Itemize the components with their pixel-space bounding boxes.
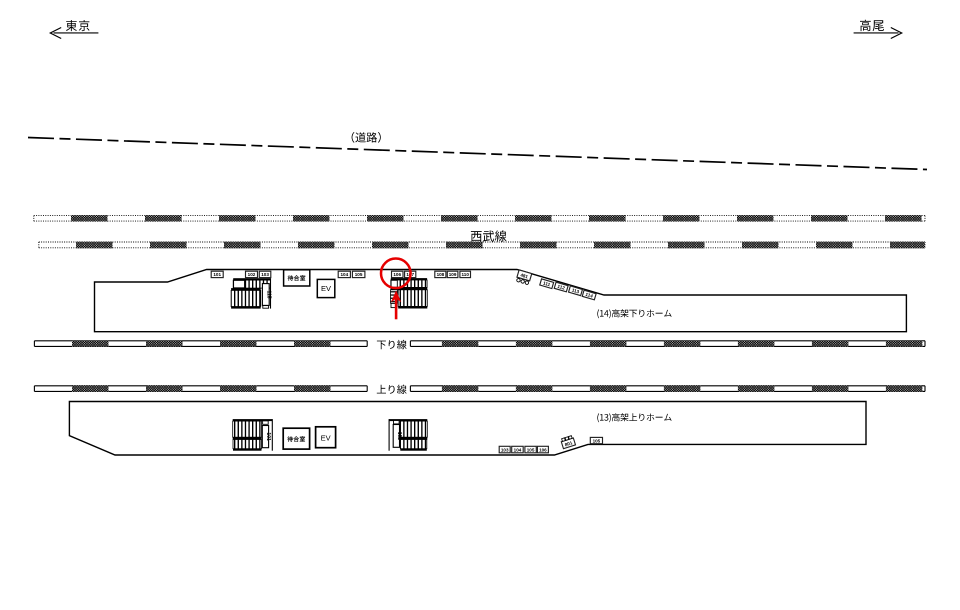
svg-text:105: 105 bbox=[355, 272, 363, 277]
svg-text:102: 102 bbox=[396, 432, 402, 441]
svg-text:106: 106 bbox=[393, 272, 401, 277]
svg-text:104: 104 bbox=[340, 272, 348, 277]
svg-text:102: 102 bbox=[248, 272, 256, 277]
svg-text:101: 101 bbox=[265, 432, 271, 441]
svg-text:103: 103 bbox=[501, 447, 509, 452]
svg-text:EV: EV bbox=[321, 284, 331, 293]
svg-text:101: 101 bbox=[213, 272, 221, 277]
svg-text:103: 103 bbox=[261, 272, 269, 277]
svg-text:109: 109 bbox=[449, 272, 457, 277]
svg-text:104: 104 bbox=[514, 447, 522, 452]
svg-text:106: 106 bbox=[539, 447, 547, 452]
svg-text:105: 105 bbox=[593, 438, 601, 443]
svg-text:110: 110 bbox=[461, 272, 469, 277]
svg-text:108: 108 bbox=[437, 272, 445, 277]
svg-text:EV: EV bbox=[321, 434, 331, 443]
svg-text:105: 105 bbox=[527, 447, 535, 452]
